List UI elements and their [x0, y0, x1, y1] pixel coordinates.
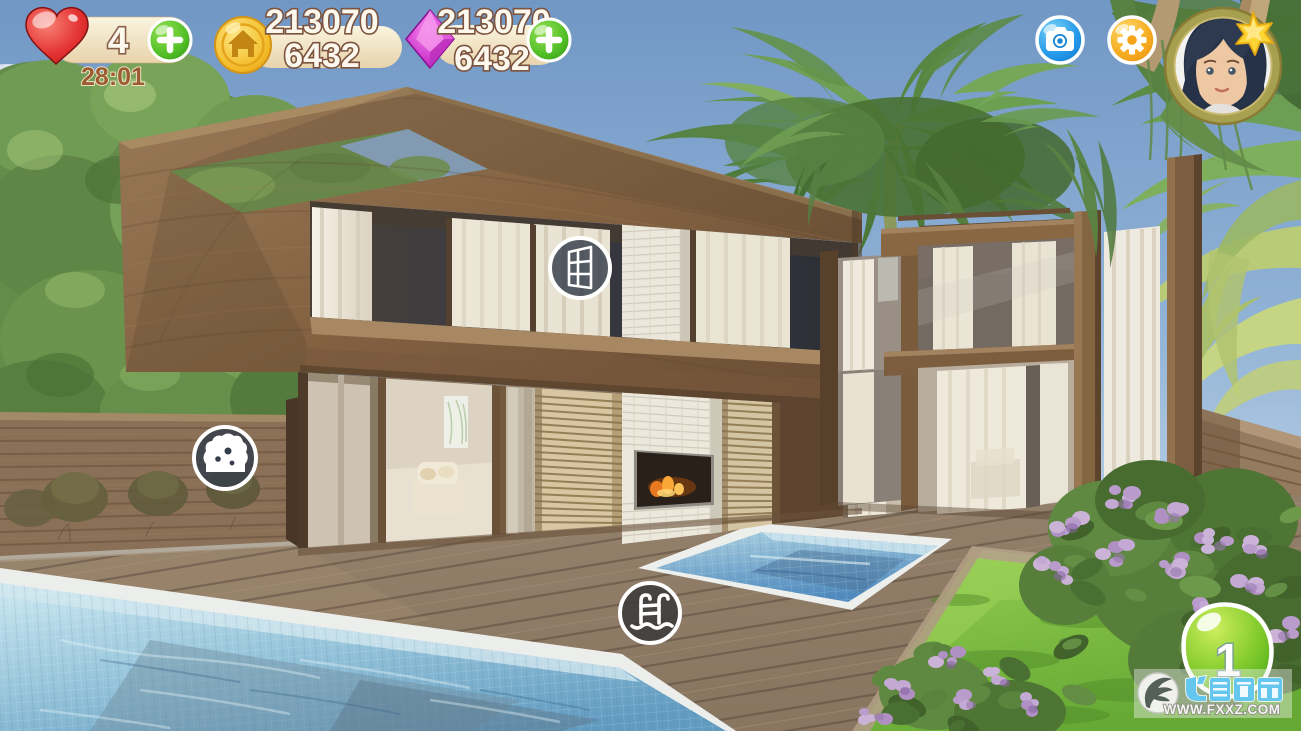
- svg-text:213070: 213070: [265, 3, 378, 41]
- svg-text:4: 4: [108, 20, 129, 61]
- svg-text:WWW.FXXZ.COM: WWW.FXXZ.COM: [1164, 702, 1281, 717]
- svg-text:28:01: 28:01: [81, 63, 145, 91]
- svg-text:6432: 6432: [454, 40, 530, 78]
- svg-text:6432: 6432: [284, 37, 360, 75]
